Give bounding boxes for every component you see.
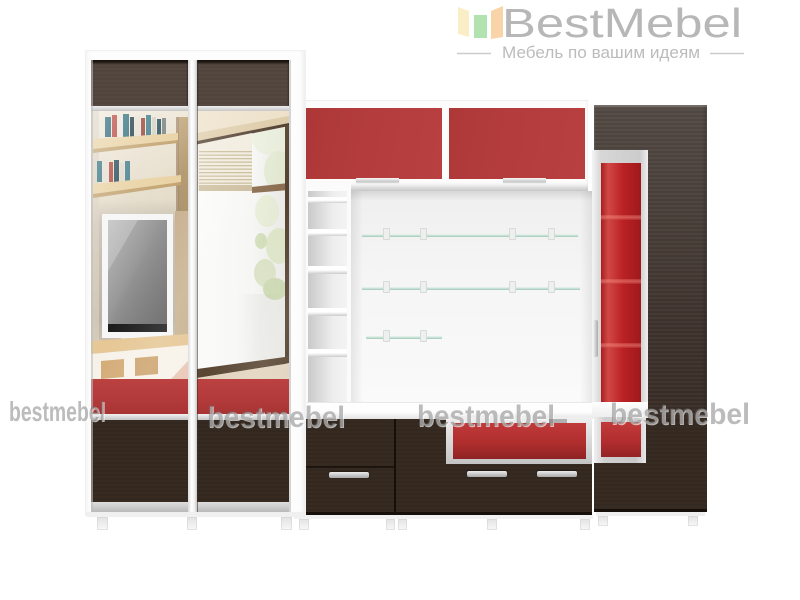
svg-text:bestmebel: bestmebel <box>610 398 750 431</box>
svg-text:bestmebel: bestmebel <box>207 401 345 434</box>
svg-text:bestmebel: bestmebel <box>417 400 555 433</box>
svg-text:bestmebel: bestmebel <box>9 396 105 427</box>
